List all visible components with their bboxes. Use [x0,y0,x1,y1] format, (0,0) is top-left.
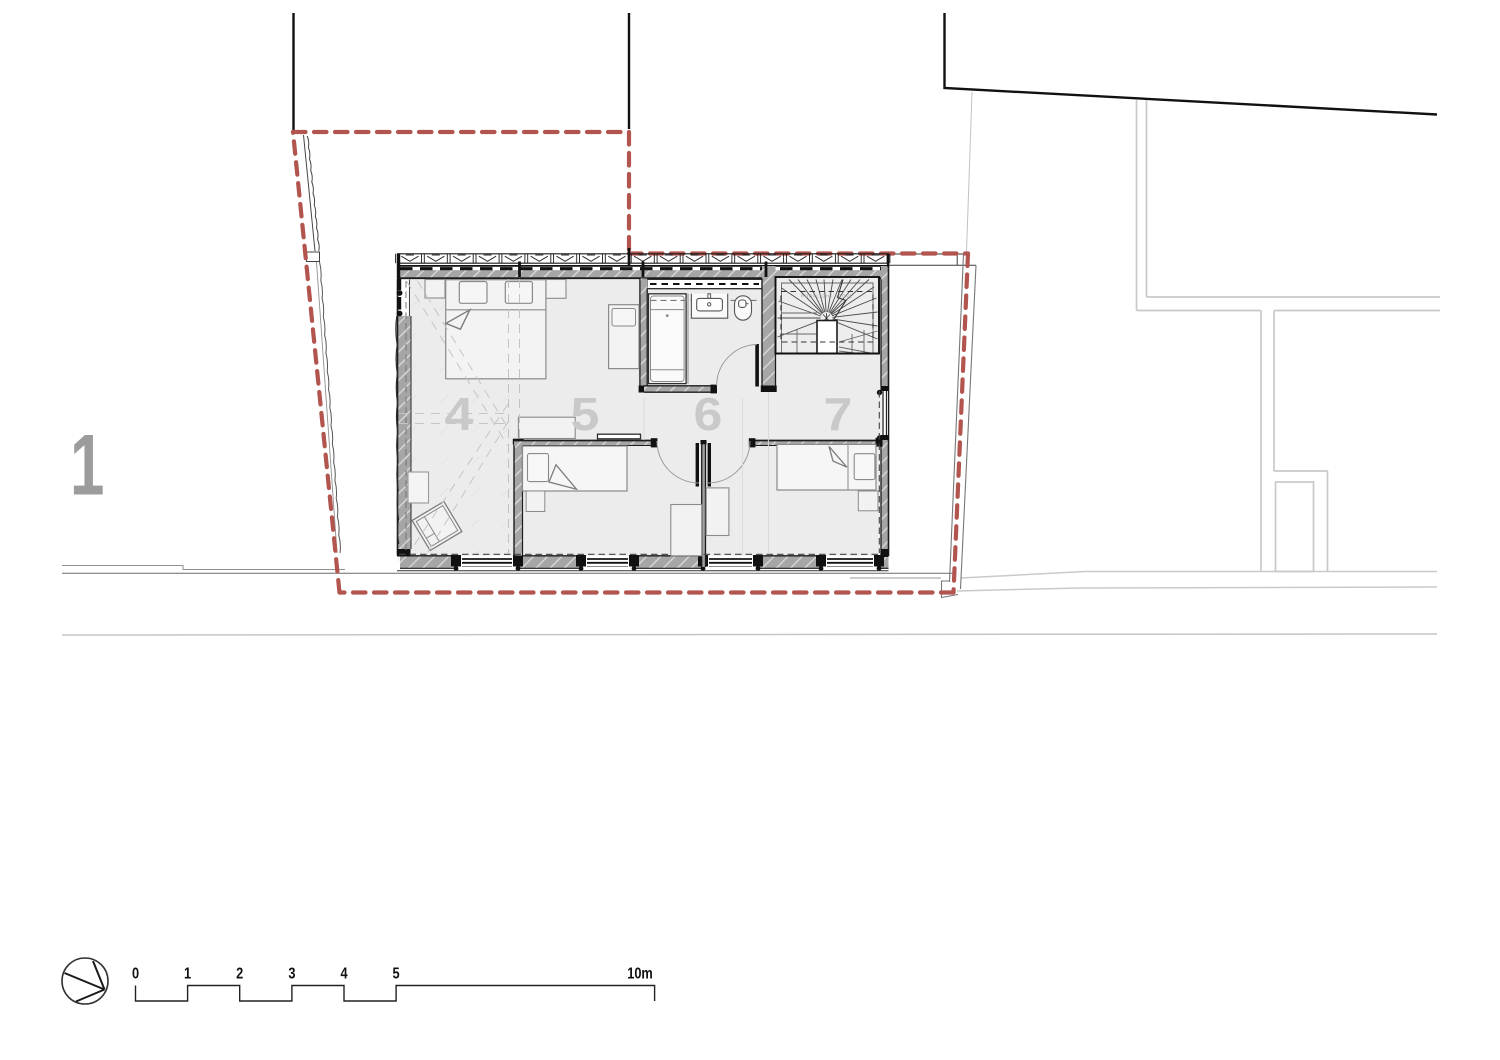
svg-text:5: 5 [571,390,600,441]
svg-text:10m: 10m [627,965,653,983]
svg-text:2: 2 [236,965,243,983]
svg-text:4: 4 [340,965,347,983]
svg-text:5: 5 [393,965,400,983]
svg-text:4: 4 [445,390,475,441]
svg-text:7: 7 [824,390,853,441]
svg-text:1: 1 [70,416,104,512]
svg-text:1: 1 [184,965,191,983]
svg-text:6: 6 [694,390,723,441]
svg-text:ROOFLIGHT ABOVE: ROOFLIGHT ABOVE [801,293,854,298]
svg-text:0: 0 [132,965,139,983]
svg-text:3: 3 [288,965,295,983]
